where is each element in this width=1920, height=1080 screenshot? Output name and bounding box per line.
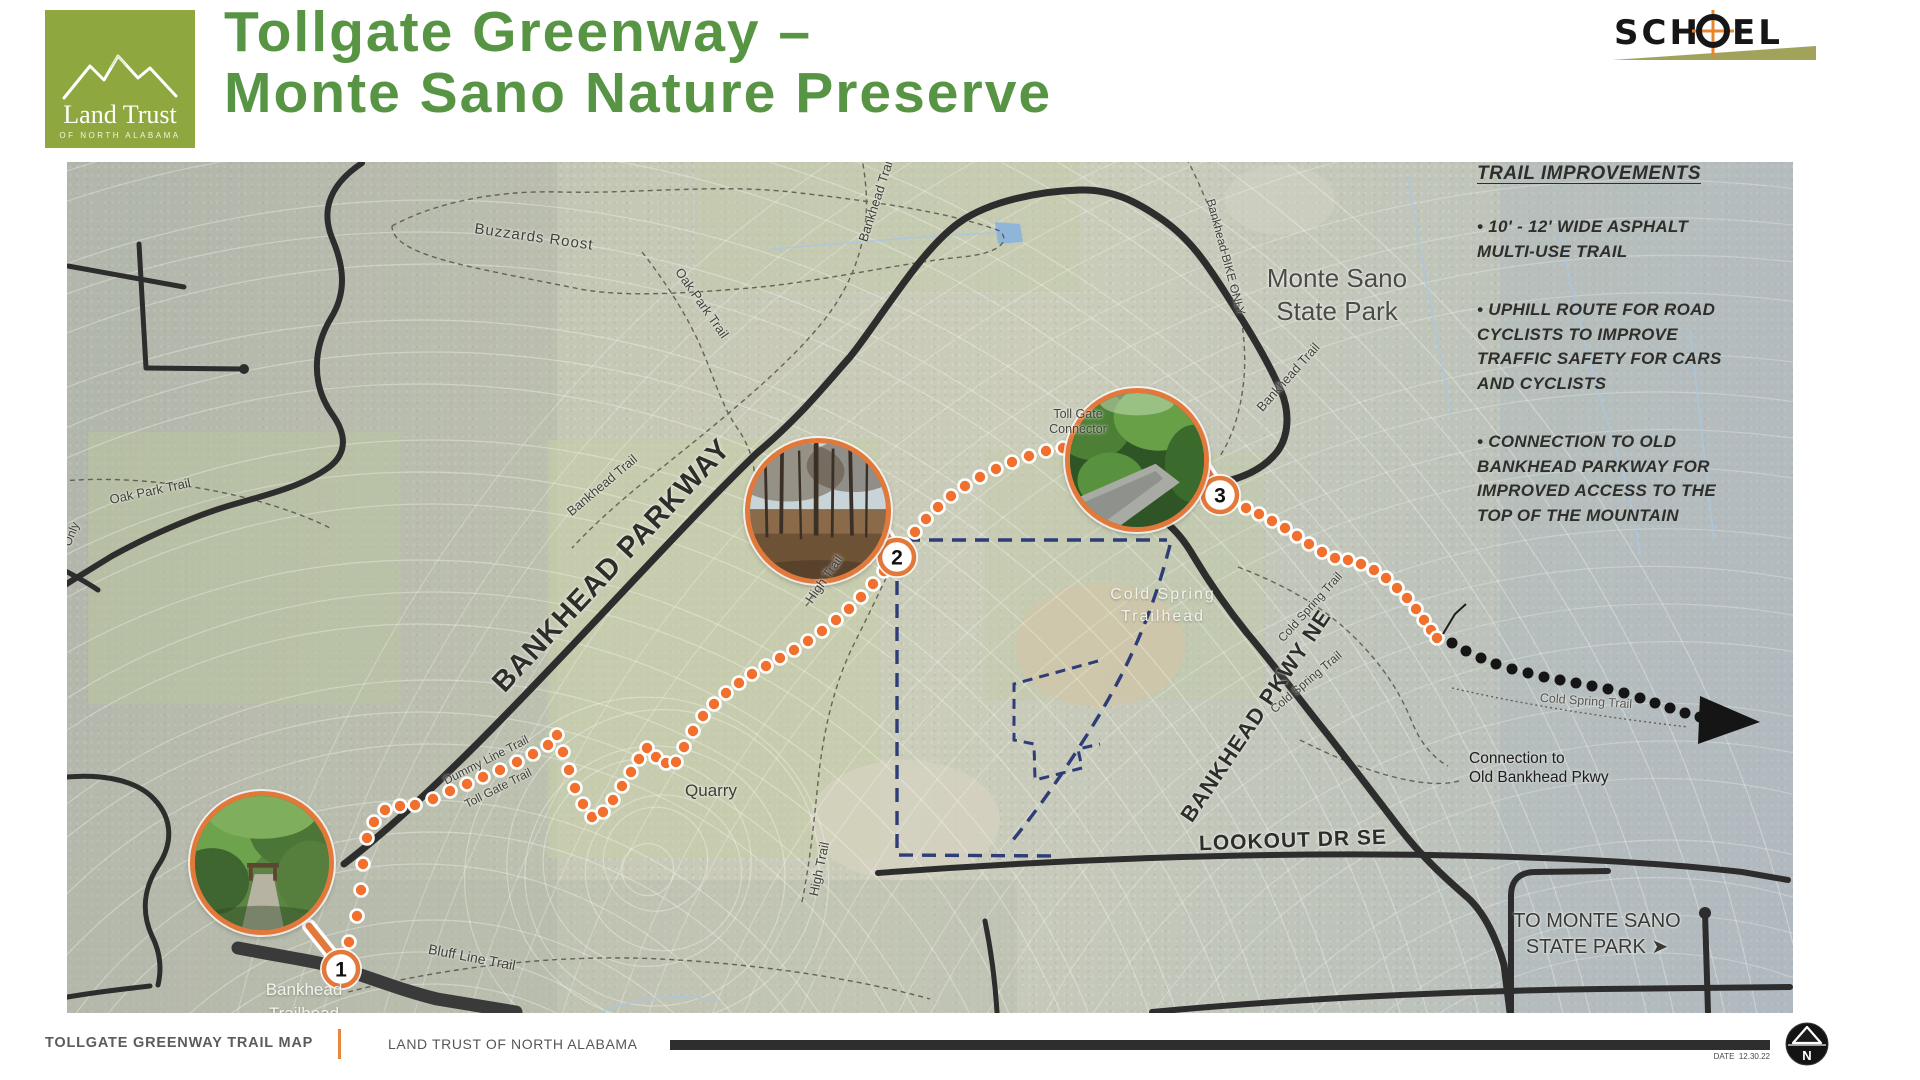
- pond: [995, 222, 1023, 244]
- road-vert-2: [1705, 913, 1708, 1012]
- photo-2-winter-trail[interactable]: [745, 438, 891, 584]
- footer-org: LAND TRUST OF NORTH ALABAMA: [388, 1036, 638, 1052]
- trail-improvements-title: TRAIL IMPROVEMENTS: [1477, 163, 1793, 185]
- svg-text:N: N: [1802, 1048, 1811, 1063]
- improvement-bullet: • UPHILL ROUTE FOR ROAD CYCLISTS TO IMPR…: [1477, 298, 1793, 396]
- trail-improvements: TRAIL IMPROVEMENTS • 10' - 12' WIDE ASPH…: [1477, 163, 1793, 562]
- callout-leader-line: [1443, 604, 1466, 634]
- footer-date: DATE 12.30.22: [1660, 1052, 1770, 1061]
- slide: Land Trust OF NORTH ALABAMA Tollgate Gre…: [0, 0, 1920, 1080]
- logo-subtitle: OF NORTH ALABAMA: [59, 131, 180, 140]
- svg-text:3: 3: [1214, 485, 1226, 508]
- page-title: Tollgate Greenway – Monte Sano Nature Pr…: [224, 2, 1052, 124]
- svg-text:2: 2: [891, 547, 903, 570]
- photo-3-paved-path[interactable]: [1065, 388, 1209, 532]
- photo-2-image: [750, 443, 886, 579]
- mountains-icon: [60, 50, 180, 102]
- title-line2: Monte Sano Nature Preserve: [224, 63, 1052, 124]
- connection-callout: Connection to Old Bankhead Pkwy: [1469, 749, 1639, 787]
- trail-map[interactable]: 123: [67, 162, 1793, 1013]
- footer-map-title: TOLLGATE GREENWAY TRAIL MAP: [45, 1035, 313, 1051]
- footer-rule: [670, 1040, 1770, 1050]
- logo-name: Land Trust: [63, 102, 176, 128]
- svg-text:1: 1: [335, 959, 347, 982]
- improvement-bullet: • CONNECTION TO OLD BANKHEAD PARKWAY FOR…: [1477, 430, 1793, 528]
- photo-1-trailhead[interactable]: [190, 791, 334, 935]
- north-arrow-icon: N: [1784, 1021, 1830, 1067]
- footer-divider: [338, 1029, 341, 1059]
- road-grid-3: [146, 368, 242, 369]
- title-line1: Tollgate Greenway –: [224, 2, 1052, 63]
- schoel-text-right: EL: [1732, 13, 1783, 53]
- schoel-text-left: SCH: [1614, 13, 1701, 53]
- improvement-bullet: • 10' - 12' WIDE ASPHALT MULTI-USE TRAIL: [1477, 215, 1793, 264]
- schoel-logo: SCH EL: [1612, 10, 1822, 79]
- photo-3-image: [1070, 393, 1204, 527]
- landtrust-logo: Land Trust OF NORTH ALABAMA: [45, 10, 195, 148]
- photo-1-image: [195, 796, 329, 930]
